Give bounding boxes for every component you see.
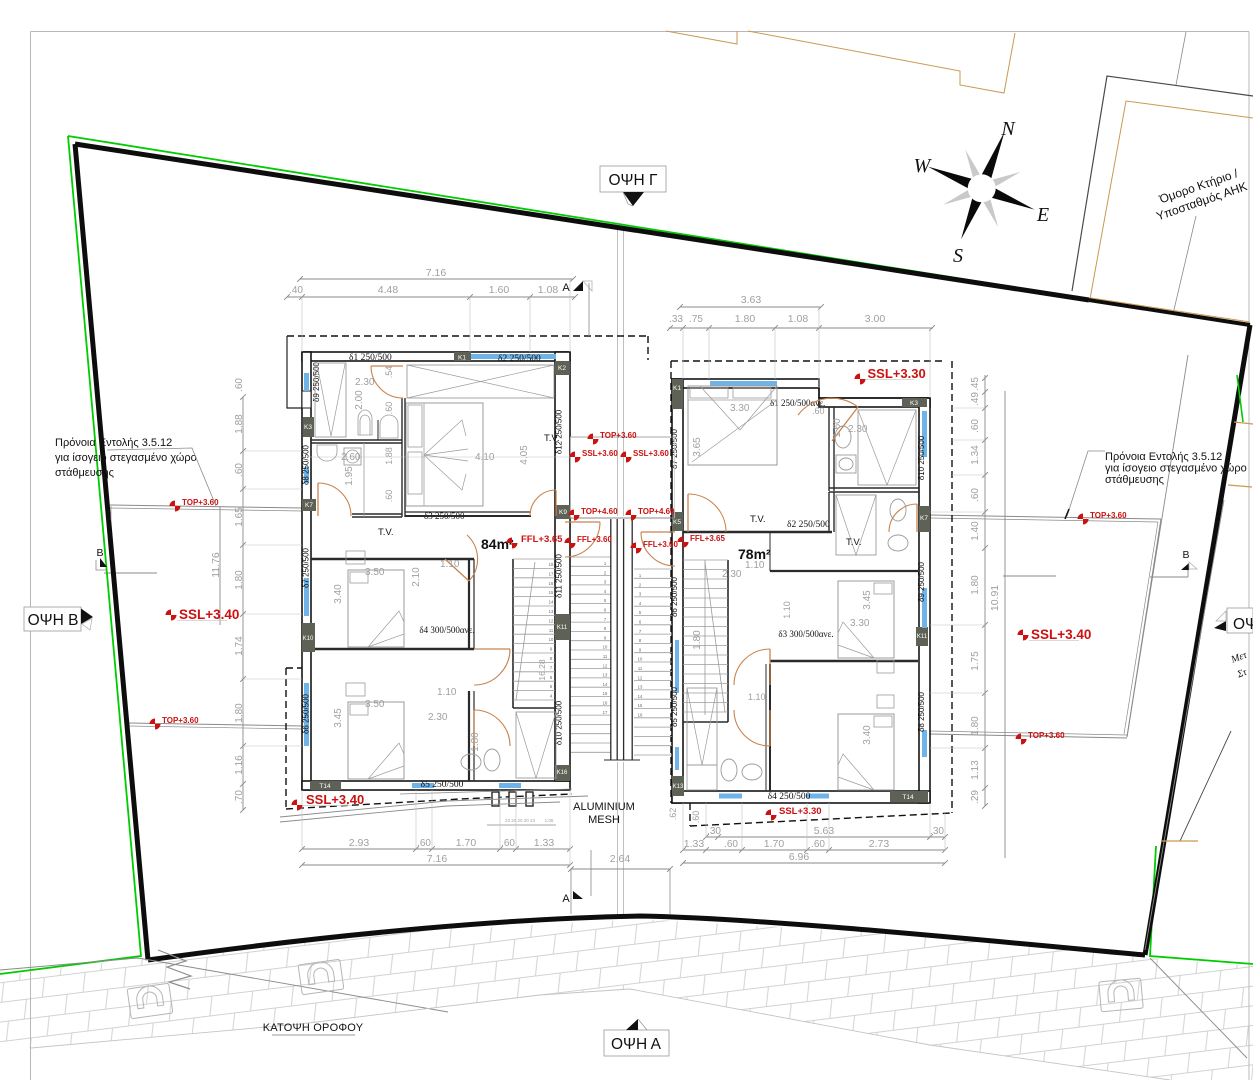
- svg-text:K11: K11: [917, 634, 928, 640]
- svg-text:3.50: 3.50: [365, 699, 385, 710]
- svg-text:FFL+3.65: FFL+3.65: [690, 534, 725, 543]
- svg-text:2.30: 2.30: [722, 569, 742, 580]
- svg-text:1.80: 1.80: [970, 716, 981, 736]
- svg-text:K7: K7: [305, 502, 313, 509]
- svg-text:11: 11: [638, 666, 643, 671]
- svg-text:στάθμευσης: στάθμευσης: [55, 467, 114, 479]
- svg-text:TOP+3.60: TOP+3.60: [162, 716, 199, 725]
- svg-text:2.60: 2.60: [341, 452, 361, 463]
- svg-text:1.80: 1.80: [970, 575, 981, 595]
- svg-text:3.65: 3.65: [692, 437, 703, 457]
- svg-text:B: B: [96, 547, 103, 559]
- svg-text:1.33: 1.33: [534, 837, 555, 849]
- svg-text:K7: K7: [920, 515, 928, 522]
- svg-text:14: 14: [638, 694, 643, 699]
- svg-text:.29: .29: [970, 790, 981, 804]
- svg-text:15: 15: [638, 703, 643, 708]
- svg-text:K13: K13: [673, 784, 684, 790]
- svg-text:T14: T14: [319, 783, 331, 790]
- svg-text:.60: .60: [384, 490, 394, 503]
- svg-text:TOP+4.60: TOP+4.60: [638, 507, 675, 516]
- svg-text:A: A: [562, 893, 570, 905]
- svg-text:TOP+3.60: TOP+3.60: [1028, 731, 1065, 740]
- svg-text:δ7 250/500: δ7 250/500: [302, 547, 311, 588]
- svg-text:.75: .75: [689, 314, 703, 325]
- svg-text:T.V.: T.V.: [378, 527, 394, 538]
- svg-text:1.08: 1.08: [538, 284, 559, 296]
- svg-text:1.10: 1.10: [782, 601, 792, 619]
- svg-text:5.63: 5.63: [814, 825, 835, 837]
- svg-text:15: 15: [549, 590, 554, 595]
- svg-text:1.16: 1.16: [234, 755, 245, 775]
- svg-text:1.80: 1.80: [735, 313, 756, 325]
- svg-text:14: 14: [549, 600, 554, 605]
- svg-text:Πρόνοια Εντολής 3.5.12: Πρόνοια Εντολής 3.5.12: [55, 437, 172, 449]
- svg-text:17: 17: [603, 710, 608, 715]
- svg-text:N: N: [1000, 118, 1016, 140]
- svg-text:2.93: 2.93: [349, 837, 370, 849]
- svg-text:1.75: 1.75: [970, 651, 981, 671]
- svg-text:T14: T14: [902, 794, 914, 801]
- svg-text:.60: .60: [691, 811, 701, 824]
- svg-text:10: 10: [603, 645, 608, 650]
- svg-text:.60: .60: [384, 402, 394, 415]
- svg-text:1.80: 1.80: [470, 732, 481, 752]
- svg-text:4.05: 4.05: [519, 445, 530, 465]
- svg-text:1.08: 1.08: [788, 313, 809, 325]
- svg-text:K2: K2: [558, 365, 566, 372]
- svg-text:.60: .60: [724, 839, 738, 850]
- svg-text:11: 11: [603, 654, 608, 659]
- svg-text:4.48: 4.48: [378, 284, 399, 296]
- svg-text:ΟΨΗ Β: ΟΨΗ Β: [28, 612, 79, 629]
- svg-text:1.60: 1.60: [832, 418, 843, 438]
- svg-text:2.30: 2.30: [848, 424, 868, 435]
- svg-text:10: 10: [549, 637, 554, 642]
- svg-text:.49: .49: [970, 392, 981, 406]
- svg-text:1.95: 1.95: [344, 466, 355, 486]
- svg-text:TOP+3.60: TOP+3.60: [1090, 511, 1127, 520]
- svg-text:1.10: 1.10: [437, 687, 457, 698]
- svg-text:78m²: 78m²: [738, 546, 771, 562]
- svg-text:11.76: 11.76: [210, 552, 222, 578]
- svg-text:S: S: [953, 245, 963, 267]
- svg-text:W: W: [914, 155, 933, 177]
- svg-text:για ίσογειο στεγασμένο χώρο: για ίσογειο στεγασμένο χώρο: [55, 452, 197, 464]
- svg-text:.60: .60: [811, 839, 825, 850]
- svg-text:1.70: 1.70: [764, 838, 785, 850]
- svg-text:6.96: 6.96: [789, 851, 810, 863]
- svg-text:3.00: 3.00: [865, 313, 886, 325]
- svg-text:ΚΑΤΟΨΗ ΟΡΟΦΟΥ: ΚΑΤΟΨΗ ΟΡΟΦΟΥ: [263, 1022, 364, 1034]
- svg-text:.60: .60: [812, 406, 825, 416]
- svg-text:12: 12: [549, 618, 554, 623]
- svg-text:16: 16: [603, 701, 608, 706]
- svg-text:.33: .33: [669, 314, 683, 325]
- svg-text:TOP+3.60: TOP+3.60: [600, 431, 637, 440]
- svg-text:4.10: 4.10: [475, 452, 495, 463]
- svg-text:1.80: 1.80: [234, 703, 245, 723]
- svg-text:FFL+3.65: FFL+3.65: [521, 534, 563, 545]
- svg-text:SSL+3.40: SSL+3.40: [179, 607, 239, 622]
- svg-text:1.88: 1.88: [384, 447, 394, 465]
- svg-text:.60: .60: [234, 463, 245, 477]
- svg-text:13: 13: [549, 609, 554, 614]
- svg-text:.45: .45: [970, 377, 981, 391]
- svg-text:.30: .30: [707, 826, 721, 837]
- svg-text:δ11 250/500: δ11 250/500: [555, 554, 564, 598]
- svg-text:δ5 250/500: δ5 250/500: [421, 780, 464, 790]
- svg-text:12: 12: [638, 675, 643, 680]
- svg-text:3.30: 3.30: [730, 403, 750, 414]
- svg-text:K3: K3: [910, 400, 918, 407]
- svg-text:ALUMINIUM: ALUMINIUM: [573, 801, 635, 813]
- svg-text:δ5 250/500: δ5 250/500: [670, 686, 679, 727]
- svg-text:1.80: 1.80: [692, 630, 703, 650]
- svg-text:1.33: 1.33: [684, 838, 705, 850]
- svg-text:18: 18: [549, 562, 554, 567]
- svg-text:δ9 250/500: δ9 250/500: [312, 361, 321, 402]
- svg-text:2.10: 2.10: [411, 567, 422, 587]
- svg-text:16: 16: [549, 581, 554, 586]
- svg-text:.60: .60: [970, 419, 981, 433]
- svg-text:1.10: 1.10: [748, 692, 766, 702]
- svg-text:ΟΨ: ΟΨ: [1233, 616, 1253, 633]
- svg-text:11: 11: [549, 628, 554, 633]
- svg-text:ΟΨΗ Α: ΟΨΗ Α: [611, 1036, 662, 1053]
- svg-text:K3: K3: [304, 424, 312, 431]
- svg-text:.40: .40: [289, 285, 303, 296]
- svg-text:3.50: 3.50: [365, 567, 385, 578]
- svg-text:7.16: 7.16: [426, 267, 447, 279]
- svg-text:στάθμευσης: στάθμευσης: [1105, 474, 1164, 486]
- svg-text:23 20 20 20 23: 23 20 20 20 23: [505, 818, 536, 823]
- svg-text:B: B: [1182, 549, 1189, 561]
- svg-text:.62: .62: [668, 808, 678, 821]
- svg-text:2.30: 2.30: [428, 712, 448, 723]
- svg-text:2.73: 2.73: [869, 838, 890, 850]
- svg-text:δ10 250/500: δ10 250/500: [917, 435, 926, 480]
- svg-text:13: 13: [638, 685, 643, 690]
- svg-text:3.40: 3.40: [333, 584, 344, 604]
- svg-text:1.88: 1.88: [234, 414, 245, 434]
- svg-text:T.V.: T.V.: [544, 433, 560, 444]
- svg-text:δ2 250/500: δ2 250/500: [787, 520, 830, 530]
- svg-text:.60: .60: [234, 378, 245, 392]
- svg-text:1.13: 1.13: [970, 760, 981, 780]
- svg-text:SSL+3.40: SSL+3.40: [306, 792, 364, 807]
- svg-text:1.70: 1.70: [456, 837, 477, 849]
- svg-text:.54: .54: [384, 366, 394, 379]
- svg-text:1.10: 1.10: [440, 559, 460, 570]
- svg-text:SSL+3.30: SSL+3.30: [868, 366, 926, 381]
- svg-text:ΟΨΗ Γ: ΟΨΗ Γ: [608, 172, 658, 189]
- svg-text:1.74: 1.74: [234, 636, 245, 656]
- svg-text:15: 15: [603, 691, 608, 696]
- svg-text:δ1 250/500: δ1 250/500: [349, 353, 392, 363]
- svg-text:K1: K1: [458, 355, 466, 362]
- svg-text:K1: K1: [673, 385, 681, 392]
- svg-text:3.30: 3.30: [850, 618, 870, 629]
- svg-text:T.V.: T.V.: [750, 514, 766, 525]
- svg-text:.60: .60: [417, 838, 431, 849]
- svg-text:K10: K10: [303, 636, 314, 642]
- svg-text:16: 16: [638, 713, 643, 718]
- svg-text:K16: K16: [557, 770, 568, 776]
- svg-text:για ίσογειο στεγασμένο χώρο: για ίσογειο στεγασμένο χώρο: [1105, 463, 1247, 475]
- svg-text:.70: .70: [234, 790, 245, 804]
- svg-text:FFL+3.60: FFL+3.60: [643, 540, 678, 549]
- svg-text:16.28: 16.28: [537, 659, 547, 681]
- svg-text:SSL+3.60: SSL+3.60: [633, 449, 669, 458]
- svg-text:14: 14: [603, 682, 608, 687]
- svg-text:1.40: 1.40: [970, 521, 981, 541]
- svg-text:Πρόνοια Εντολής 3.5.12: Πρόνοια Εντολής 3.5.12: [1105, 451, 1222, 463]
- svg-text:1.60: 1.60: [489, 284, 510, 296]
- svg-text:K5: K5: [673, 519, 681, 526]
- svg-text:2.00: 2.00: [354, 390, 365, 410]
- svg-text:3.45: 3.45: [862, 590, 873, 610]
- svg-text:2.64: 2.64: [610, 853, 631, 865]
- svg-text:1.80: 1.80: [234, 570, 245, 590]
- svg-text:T.V.: T.V.: [846, 537, 862, 548]
- svg-text:TOP+4.60: TOP+4.60: [581, 507, 618, 516]
- svg-text:3.45: 3.45: [333, 708, 344, 728]
- svg-text:.60: .60: [970, 488, 981, 502]
- svg-text:7.16: 7.16: [427, 853, 448, 865]
- svg-text:δ2 250/500: δ2 250/500: [498, 354, 541, 364]
- svg-text:10.91: 10.91: [989, 585, 1001, 611]
- svg-text:1.05: 1.05: [545, 818, 554, 823]
- svg-text:δ4 300/500ανε.: δ4 300/500ανε.: [419, 625, 474, 635]
- svg-text:SSL+3.60: SSL+3.60: [582, 449, 618, 458]
- svg-text:δ8 250/500: δ8 250/500: [917, 691, 926, 732]
- svg-text:FFL+3.60: FFL+3.60: [577, 535, 612, 544]
- svg-text:K11: K11: [557, 625, 568, 631]
- svg-text:12: 12: [603, 663, 608, 668]
- svg-text:13: 13: [603, 673, 608, 678]
- svg-text:δ9 250/500: δ9 250/500: [917, 561, 926, 602]
- svg-text:.60: .60: [501, 838, 515, 849]
- svg-text:δ4 250/500: δ4 250/500: [768, 792, 811, 802]
- svg-text:2.30: 2.30: [355, 377, 375, 388]
- svg-text:MESH: MESH: [588, 814, 620, 826]
- svg-text:3.40: 3.40: [862, 725, 873, 745]
- svg-text:E: E: [1036, 204, 1049, 226]
- svg-text:3.63: 3.63: [741, 294, 762, 306]
- svg-text:.30: .30: [930, 826, 944, 837]
- svg-text:δ12 250/500: δ12 250/500: [555, 409, 564, 454]
- svg-text:SSL+3.30: SSL+3.30: [779, 806, 822, 817]
- svg-text:δ3 300/500ανε.: δ3 300/500ανε.: [778, 629, 833, 639]
- svg-text:SSL+3.40: SSL+3.40: [1031, 627, 1091, 642]
- svg-text:1.65: 1.65: [234, 507, 245, 527]
- svg-text:A: A: [562, 282, 570, 294]
- svg-text:17: 17: [549, 571, 554, 576]
- svg-text:K9: K9: [559, 509, 567, 516]
- svg-text:10: 10: [638, 657, 643, 662]
- svg-text:1.34: 1.34: [970, 445, 981, 465]
- svg-text:δ8 250/500: δ8 250/500: [302, 444, 311, 485]
- svg-text:δ6 250/500: δ6 250/500: [302, 693, 311, 734]
